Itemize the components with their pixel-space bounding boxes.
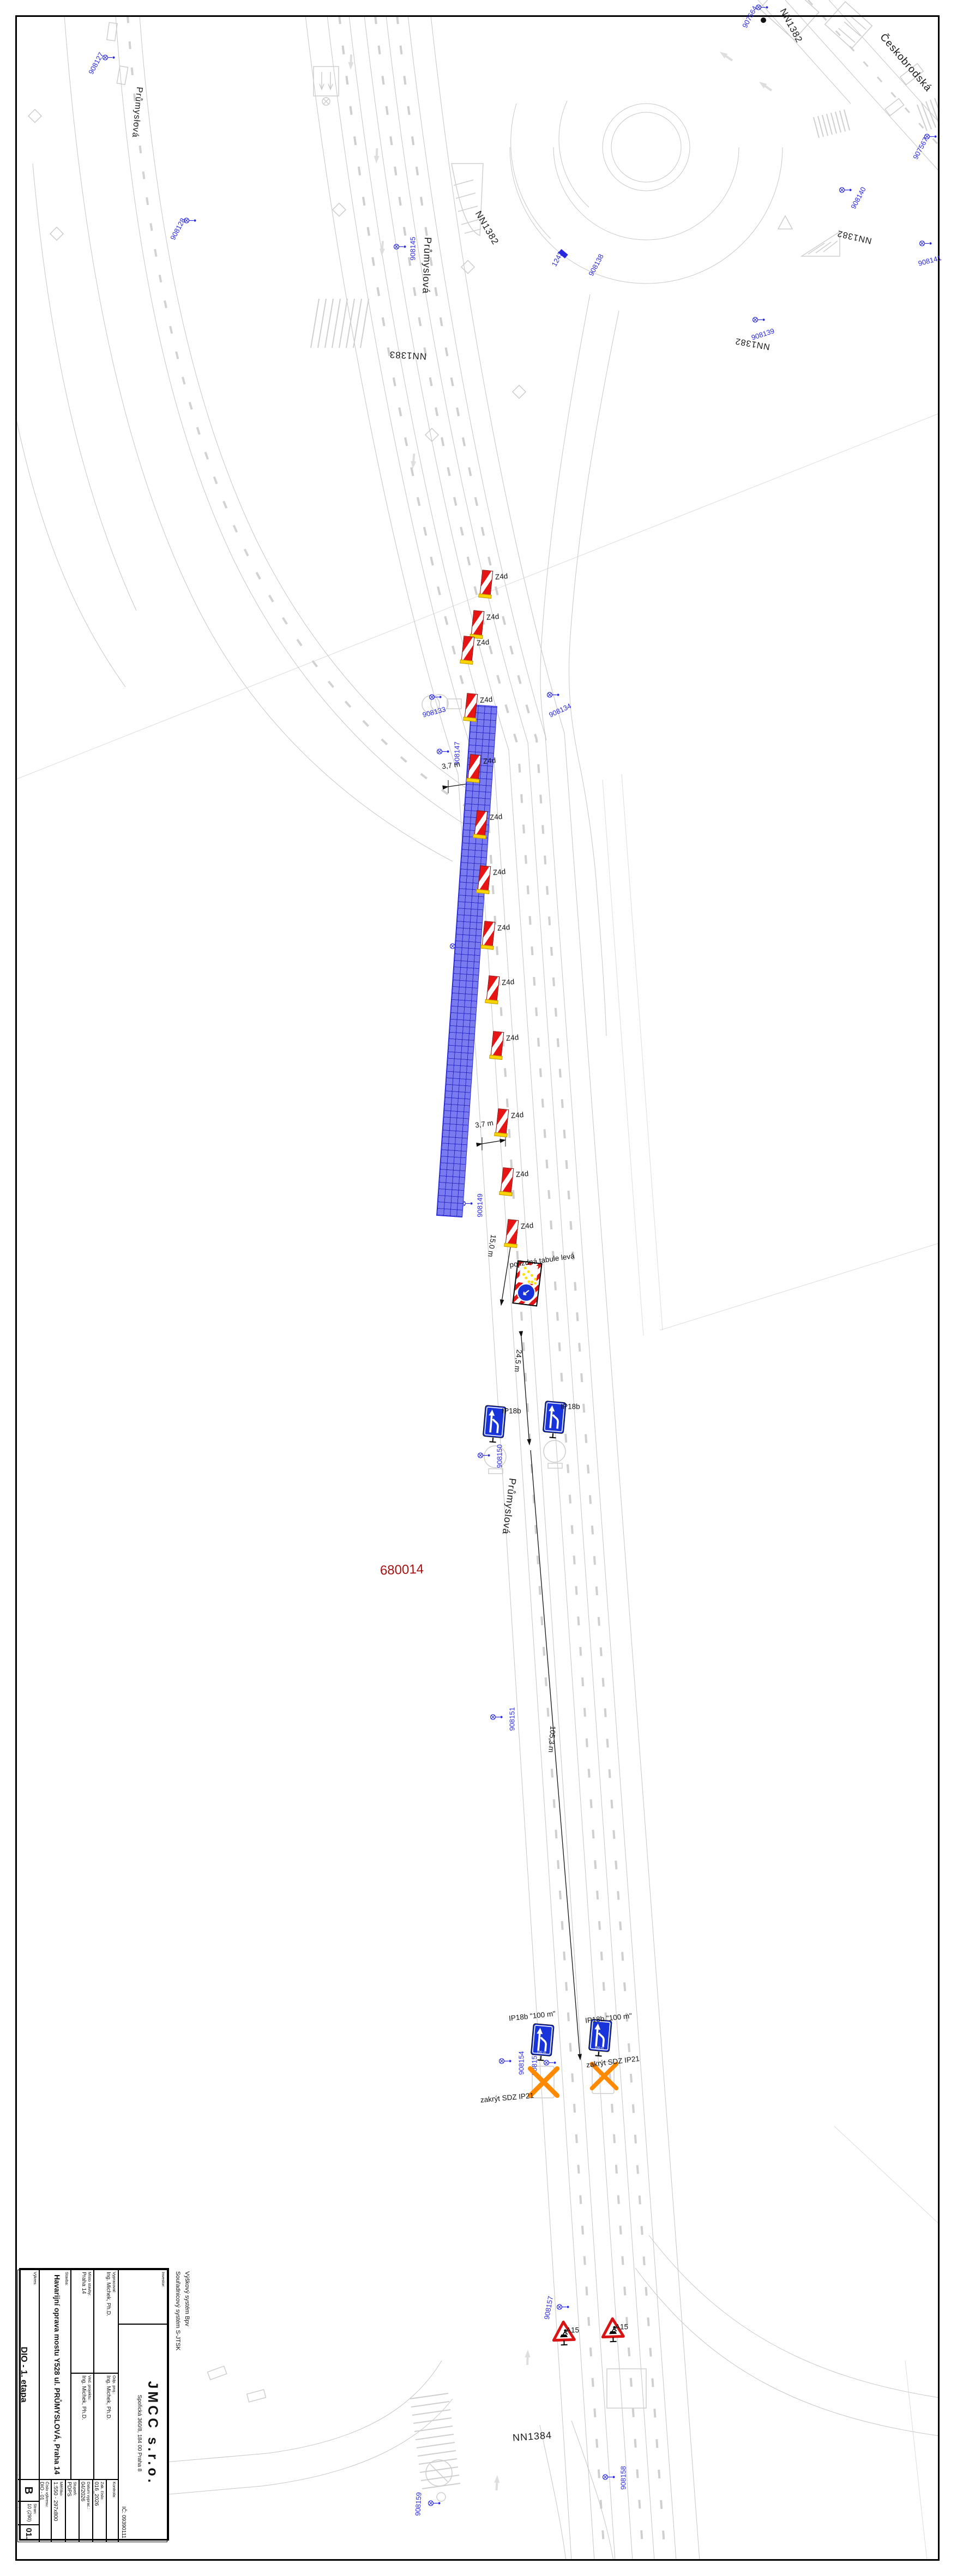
z4d-sign-label: Z4d <box>476 638 489 647</box>
z4d-sign-label: Z4d <box>520 1222 533 1230</box>
lamp-post-icon <box>556 2303 570 2314</box>
lamp-post-icon <box>393 243 407 254</box>
company-address: Spořická 360/8, 184 00 Praha 8 <box>136 2326 142 2540</box>
odp-proj-value: Ing. Michek, Ph.D. <box>105 2375 111 2477</box>
stavba-value: Havarijní oprava mostu Y528 ul. PRŮMYSLO… <box>52 2272 61 2477</box>
lamp-post-icon <box>436 747 450 759</box>
vypracoval-label: Vypracoval: <box>112 2272 117 2371</box>
z4d-sign-label: Z4d <box>497 924 510 932</box>
z4d-sign-label: Z4d <box>486 613 499 621</box>
annotation-label: 24,5 m <box>513 1349 523 1372</box>
meritko-label: Měřítko: <box>59 2482 64 2540</box>
vypracoval-value: Ing. Michek, Ph.D. <box>105 2272 111 2371</box>
revision-cell: B <box>17 2480 39 2501</box>
z4d-sign-label: Z4d <box>483 757 496 765</box>
lamp-post-icon <box>477 1451 491 1463</box>
cislo-vykresu-value: DIO - 01 <box>39 2482 45 2500</box>
z4d-sign-label: Z4d <box>492 868 505 876</box>
a15-roadworks-sign <box>600 2316 625 2348</box>
stavba-cell: Stavba: Havarijní oprava mostu Y528 ul. … <box>39 2270 71 2480</box>
cislo-vykresu-cell: Číslo výkresu: DIO - 01 <box>39 2480 51 2542</box>
survey-point-label: 908151 <box>509 1707 516 1730</box>
lamp-post-icon <box>923 132 937 144</box>
misto-cell: Místo stavby: Praha 14 <box>71 2270 94 2373</box>
z4d-sign-label: Z4d <box>479 696 492 704</box>
ip18b-100m-sign: 100 m <box>529 2023 555 2066</box>
street-label: NN1383 <box>389 350 426 361</box>
height-system-note: Výškový systém Bpv <box>184 2271 190 2326</box>
misto-label: Místo stavby: <box>87 2272 92 2371</box>
drawing-frame <box>16 16 939 2560</box>
company-ic: IČ: 09390111 <box>121 2506 127 2538</box>
datum-label: Datum vyprac.: <box>86 2482 91 2540</box>
pass-left-arrow-icon: ↙ <box>516 1282 537 1303</box>
title-block: Investor: JMCC s.r.o. Spořická 360/8, 18… <box>19 2268 169 2541</box>
stavba-label: Stavba: <box>64 2272 69 2477</box>
lamp-post-icon <box>755 3 769 15</box>
annotation-label: IP18b <box>502 1407 521 1415</box>
survey-point-label: 908154 <box>518 2051 525 2074</box>
survey-point-label: 908145 <box>410 237 417 260</box>
odp-proj-cell: Odp. proj.: Ing. Michek, Ph.D. <box>94 2373 118 2480</box>
lamp-post-icon <box>101 53 116 65</box>
investor-label: Investor: <box>161 2272 166 2322</box>
lamp-post-icon <box>183 216 197 228</box>
datum-value: 04/2026 <box>80 2482 86 2540</box>
cislo-vykresu-label: Číslo výkresu: <box>45 2482 50 2540</box>
company-cell: JMCC s.r.o. Spořická 360/8, 184 00 Praha… <box>118 2324 167 2542</box>
kontrola-cell: Kontrola: <box>106 2480 118 2542</box>
stran-value: 10 (290) <box>27 2503 32 2523</box>
road-linework <box>0 0 957 2576</box>
coordinate-system-note: Souřadnicový systém S-JTSK <box>174 2271 181 2351</box>
stran-label: Stran: <box>33 2503 38 2523</box>
lamp-post-icon <box>428 693 442 704</box>
z4d-sign-label: Z4d <box>501 978 514 986</box>
parcel-number-label: 680014 <box>380 1563 424 1578</box>
lamp-post-icon <box>838 186 852 197</box>
vypracoval-cell: Vypracoval: Ing. Michek, Ph.D. <box>94 2270 118 2373</box>
ved-projektu-cell: Ved. projektu: Ing. Michek, Ph.D. <box>71 2373 94 2480</box>
lamp-post-icon <box>601 2473 616 2484</box>
meritko-cell: Měřítko: 1:550 - 297x800 <box>51 2480 65 2542</box>
a15-roadworks-sign <box>551 2320 576 2351</box>
survey-point-label: 908159 <box>414 2492 422 2516</box>
meritko-value: 1:550 - 297x800 <box>52 2482 58 2540</box>
kontrola-label: Kontrola: <box>112 2482 117 2540</box>
vykres-label: Výkres: <box>33 2272 38 2477</box>
annotation-label: A15 <box>615 2323 628 2331</box>
vykres-value: DIO - 1. etapa <box>19 2272 28 2477</box>
lamp-post-icon <box>427 2499 441 2511</box>
street-label: NN1384 <box>512 2430 552 2443</box>
stupen-label: Stupeň: <box>73 2482 77 2540</box>
z4d-sign-label: Z4d <box>515 1170 528 1178</box>
benchmark-dot <box>761 17 766 23</box>
lamp-post-icon <box>918 239 932 251</box>
street-label: Průmyslová <box>421 237 433 294</box>
sheet-number-cell: 01. <box>17 2525 39 2542</box>
annotation-label: IP18b <box>561 1403 580 1410</box>
zak-cislo-cell: Zak. číslo: 016_2026 <box>93 2480 106 2542</box>
survey-point-label: 908149 <box>477 1193 484 1217</box>
stupen-value: PDPS <box>66 2482 72 2540</box>
ved-projektu-value: Ing. Michek, Ph.D. <box>81 2375 87 2477</box>
lamp-post-icon <box>546 691 560 702</box>
ip18b-100m-sign: 100 m <box>587 2018 613 2062</box>
survey-point-label: 908158 <box>620 2466 627 2489</box>
datum-cell: Datum vyprac.: 04/2026 <box>79 2480 93 2542</box>
vykres-cell: Výkres: DIO - 1. etapa <box>17 2270 39 2480</box>
stran-cell: Stran: 10 (290) <box>17 2501 39 2525</box>
annotation-label: 105,3 m <box>547 1726 557 1753</box>
odp-proj-label: Odp. proj.: <box>112 2375 117 2477</box>
zak-cislo-value: 016_2026 <box>93 2482 99 2540</box>
company-name: JMCC s.r.o. <box>145 2326 160 2540</box>
lamp-post-icon <box>751 316 766 327</box>
z4d-sign-label: Z4d <box>489 813 502 821</box>
lamp-post-icon <box>489 1713 503 1724</box>
z4d-sign-label: Z4d <box>510 1111 523 1119</box>
drawing-sheet: ČeskobrodskáNN1382NN1382NN1383NN1382NN13… <box>0 0 957 2576</box>
z4d-sign-label: Z4d <box>495 572 508 581</box>
zak-cislo-label: Zak. číslo: <box>100 2482 105 2540</box>
lamp-post-icon <box>498 2057 512 2068</box>
ved-projektu-label: Ved. projektu: <box>87 2375 92 2477</box>
misto-value: Praha 14 <box>81 2272 87 2371</box>
annotation-label: A15 <box>566 2326 579 2334</box>
investor-cell: Investor: <box>118 2270 167 2324</box>
stupen-cell: Stupeň: PDPS <box>65 2480 79 2542</box>
z4d-sign-label: Z4d <box>505 1034 519 1042</box>
